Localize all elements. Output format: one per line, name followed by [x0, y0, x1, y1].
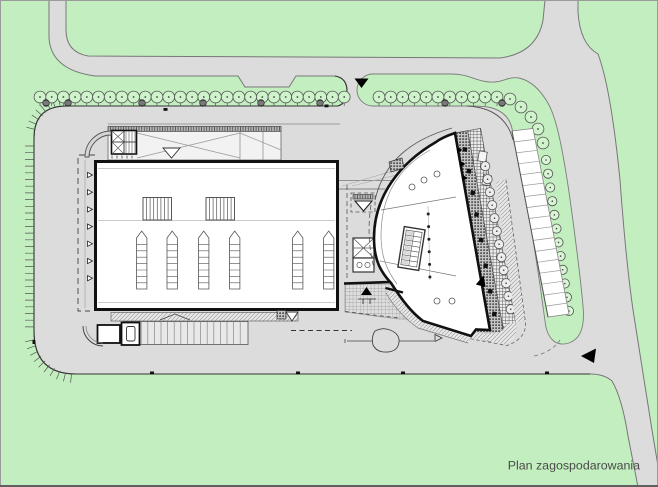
svg-text:Plan zagospodarowania: Plan zagospodarowania [508, 459, 640, 473]
